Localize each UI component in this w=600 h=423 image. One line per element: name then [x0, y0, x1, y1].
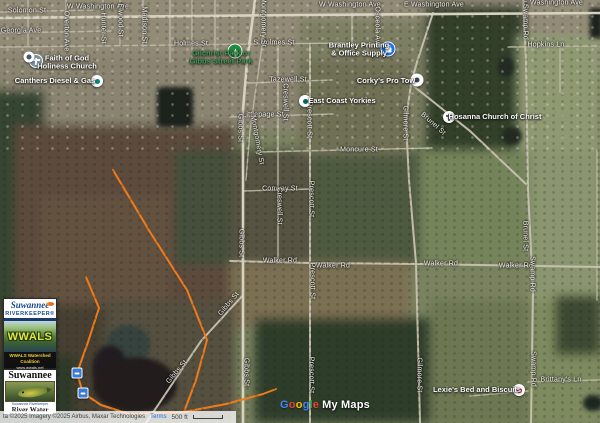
- boat-ramp-icon: [81, 392, 86, 394]
- street-label-holmes-st: Holmes St: [174, 41, 208, 48]
- street-label-walker-rd: Walker Rd: [316, 263, 350, 270]
- wwals-coalition-line: WWALS Watershed Coalition: [4, 353, 56, 365]
- street-label-brittany-s-ln: Brittany's Ln: [541, 377, 582, 384]
- poi-label-east-coast-yorkies[interactable]: East Coast Yorkies: [308, 97, 375, 105]
- riverkeeper-logo-subtitle: RIVERKEEPER®: [4, 311, 56, 318]
- access-point-marker-river-access-point-1[interactable]: [72, 368, 83, 379]
- street-label-madison-st: Madison St: [141, 6, 148, 43]
- scale-bar: [193, 415, 223, 419]
- street-label-gibbs-st: Gibbs St: [217, 291, 241, 317]
- street-label-swamp-rd: Swamp Rd: [522, 4, 529, 40]
- street-label-gibbs-st: Gibbs St: [243, 358, 250, 386]
- dot-icon: [27, 55, 32, 60]
- street-label-solomon-st: Solomon St: [8, 8, 46, 15]
- wwals-wordmark: WWALS: [8, 331, 53, 343]
- street-label-overton-ave: Overton Ave: [63, 11, 70, 52]
- street-label-brunel-st: Brunel St: [522, 221, 529, 252]
- water-trail-logo-title: Suwannee: [4, 370, 56, 381]
- street-label-walker-rd: Walker Rd: [263, 258, 297, 265]
- boat-ramp-icon: [75, 372, 80, 374]
- street-label-prescott-st: Prescott St: [309, 263, 316, 299]
- street-label-georgia-ave: Georgia Ave: [1, 28, 42, 35]
- bass-fish-art: [5, 381, 55, 402]
- my-maps-satellite-view[interactable]: Solomon StW Washington AveW Washington A…: [0, 0, 600, 423]
- tow-truck-icon: [415, 78, 420, 83]
- street-label-w-washington-ave: W Washington Ave: [319, 2, 381, 9]
- terms-link[interactable]: Terms: [150, 414, 166, 420]
- street-label-prescott-st: Prescott St: [306, 102, 313, 138]
- google-my-maps-watermark[interactable]: GoogleMy Maps: [280, 399, 370, 411]
- poi-marker-unnamed-place[interactable]: [24, 52, 35, 63]
- access-point-marker-river-access-point-2[interactable]: [78, 388, 89, 399]
- fuel-icon: [95, 79, 100, 84]
- street-label-montgomery-st: Montgomery St: [260, 0, 267, 47]
- street-label-creswell-st: Creswell St: [282, 83, 289, 121]
- wwals-logo-footer: WWALS Watershed Coalition www.wwals.net: [4, 352, 56, 368]
- street-label-elwood-st: Elwood St: [117, 3, 124, 36]
- fish-swoosh-icon: [46, 302, 54, 306]
- scale-label: 500 ft: [172, 414, 188, 421]
- street-label-e-washington-ave: E Washington Ave: [404, 2, 464, 9]
- street-label-hunter-st: Hunter St: [100, 12, 107, 43]
- street-label-moncure-st: Moncure St: [340, 147, 378, 154]
- poi-label-faith-of-god-holiness-church[interactable]: Faith of GodHoliness Church: [37, 55, 97, 72]
- map-attribution: ta ©2025 Imagery ©2025 Airbus, Maxar Tec…: [3, 414, 145, 420]
- river-water-trail-logo: Suwannee Suwannee Riverkeeper River Wate…: [3, 369, 57, 415]
- street-label-prescott-st: Prescott St: [308, 181, 315, 217]
- poi-label-gilchrist-park[interactable]: Gilchrist Park orGibbs Street Park: [190, 50, 253, 67]
- google-logo: Google: [280, 399, 319, 411]
- street-label-creswell-st: Creswell St: [276, 187, 283, 225]
- poi-label-corkys-pro-tow[interactable]: Corky's Pro Tow: [357, 77, 415, 85]
- poi-label-canthers-diesel-gas[interactable]: Canthers Diesel & Gas: [15, 77, 95, 85]
- poi-label-lexies-bed-and-biscuits[interactable]: Lexie's Bed and Biscuits: [433, 386, 521, 394]
- street-label-gibbs-st: Gibbs St: [238, 229, 245, 257]
- street-label-hopkins-ln: Hopkins Ln: [527, 42, 564, 49]
- street-label-gilmore-st: Gilmore St: [402, 105, 409, 140]
- street-label-montgomery-st: Montgomery St: [249, 115, 265, 166]
- street-label-swamp-rd: Swamp Rd: [529, 256, 536, 292]
- poi-label-brantley-printing-office-supply[interactable]: Brantley Printing& Office Supply: [329, 42, 389, 59]
- street-label-prescott-st: Prescott St: [308, 357, 315, 393]
- street-label-gilmore-st: Gilmore St: [416, 357, 423, 392]
- poi-label-hosanna-church-of-christ[interactable]: Hosanna Church of Christ: [449, 113, 542, 121]
- label-layer: Solomon StW Washington AveW Washington A…: [0, 0, 600, 423]
- map-footer-bar: ta ©2025 Imagery ©2025 Airbus, Maxar Tec…: [0, 411, 236, 423]
- riverkeeper-wwals-logo: Suwannee RIVERKEEPER® WWALS WWALS Waters…: [3, 298, 57, 368]
- street-label-e-washington-ave: E Washington Ave: [523, 0, 583, 7]
- bass-fish-icon: [17, 385, 48, 399]
- my-maps-label: My Maps: [322, 399, 370, 411]
- street-label-gibbs-st: Gibbs St: [237, 114, 244, 142]
- street-label-gibbs-st: Gibbs St: [165, 359, 189, 385]
- paw-icon: [303, 99, 308, 104]
- street-label-swamp-rd: Swamp Rd: [530, 351, 537, 387]
- street-label-walker-rd: Walker Rd: [424, 261, 458, 268]
- wwals-art: WWALS: [4, 321, 56, 352]
